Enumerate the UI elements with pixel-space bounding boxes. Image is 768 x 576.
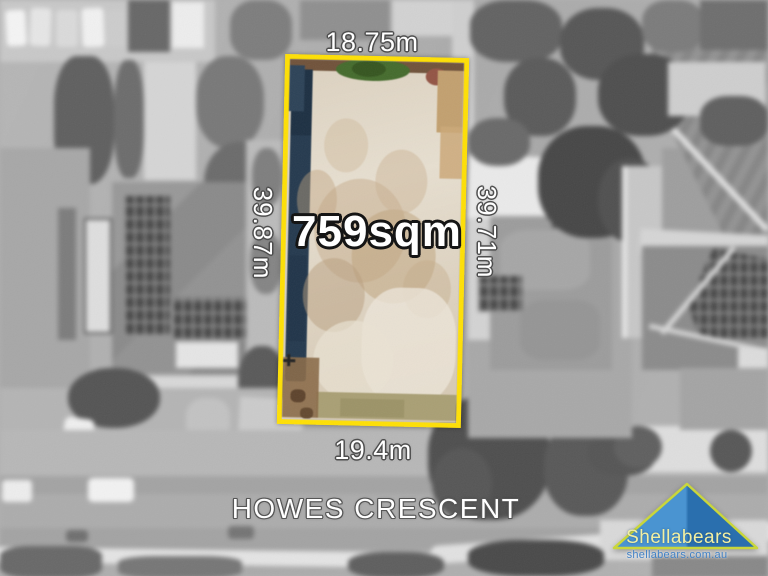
parked-car: [66, 530, 88, 542]
dirt-patch: [290, 389, 305, 402]
vegetation: [352, 60, 386, 77]
tree-canopy: [468, 540, 604, 576]
tree-canopy: [348, 552, 444, 576]
parked-car: [2, 480, 32, 502]
street-name-label: HOWES CRESCENT: [176, 493, 576, 525]
tree-canopy: [114, 60, 144, 178]
tree-canopy: [196, 56, 264, 148]
building-roof: [128, 0, 170, 52]
agency-website-label: shellabears.com.au: [597, 549, 757, 561]
dirt-patch: [439, 127, 462, 179]
dirt-patch: [375, 149, 428, 214]
agency-name-label: Shellabears: [604, 527, 754, 549]
parked-car: [106, 10, 126, 47]
lawn: [680, 368, 768, 430]
parked-car: [29, 8, 51, 47]
parked-car: [81, 8, 104, 48]
solar-panels: [124, 196, 170, 336]
dirt-patch: [300, 407, 313, 418]
building-roof: [700, 0, 768, 50]
solar-panels: [172, 298, 248, 340]
tree-canopy: [700, 96, 768, 146]
curb: [622, 166, 627, 338]
hip-roof: [520, 300, 600, 360]
vegetation: [340, 398, 404, 417]
tree-canopy: [470, 0, 562, 62]
lot-area-label: 759sqm: [277, 207, 477, 257]
parked-car: [228, 526, 254, 539]
dirt-patch: [436, 70, 463, 133]
tree-canopy: [0, 546, 102, 576]
tree-canopy: [642, 0, 704, 52]
building-roof: [172, 2, 204, 48]
courtyard: [176, 342, 238, 368]
tree-canopy: [118, 556, 242, 576]
survey-mark: [287, 354, 290, 366]
dirt-patch: [324, 118, 369, 173]
tree-canopy: [710, 430, 752, 472]
aerial-lot-photo: 18.75m 39.87m 39.71m 19.4m 759sqm HOWES …: [0, 0, 768, 576]
shadow-strip: [289, 65, 305, 111]
parked-car: [56, 10, 78, 47]
driveway: [144, 62, 196, 180]
measurement-left-boundary: 39.87m: [248, 183, 278, 283]
tree-canopy: [468, 118, 530, 166]
lawn: [0, 148, 90, 388]
parked-car: [5, 10, 27, 47]
measurement-bottom-boundary: 19.4m: [273, 435, 473, 466]
measurement-top-boundary: 18.75m: [272, 27, 472, 58]
fence-shadow: [58, 208, 76, 340]
carport-roof: [84, 218, 112, 334]
parked-car: [88, 478, 134, 502]
